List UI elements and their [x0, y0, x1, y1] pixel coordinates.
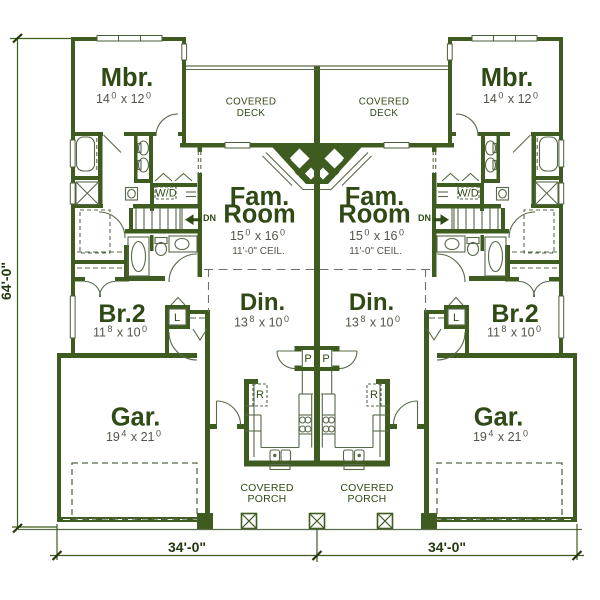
svg-text:P: P — [304, 353, 311, 365]
svg-text:PORCH: PORCH — [348, 493, 387, 505]
svg-text:150 x 160: 150 x 160 — [349, 228, 404, 244]
svg-text:L: L — [453, 312, 459, 324]
svg-text:Br.2: Br.2 — [491, 300, 538, 328]
svg-text:COVERED: COVERED — [226, 97, 277, 108]
svg-text:DECK: DECK — [237, 108, 266, 119]
svg-text:150 x 160: 150 x 160 — [230, 228, 285, 244]
svg-text:W/D: W/D — [457, 188, 478, 200]
svg-text:L: L — [174, 312, 180, 324]
svg-text:194 x 210: 194 x 210 — [106, 429, 161, 445]
svg-text:140 x 120: 140 x 120 — [96, 91, 151, 107]
svg-text:R: R — [370, 389, 378, 401]
svg-text:118 x 100: 118 x 100 — [93, 324, 147, 340]
svg-text:194 x 210: 194 x 210 — [473, 429, 528, 445]
svg-text:138 x 100: 138 x 100 — [234, 314, 289, 330]
svg-text:Gar.: Gar. — [474, 404, 524, 432]
svg-text:Din.: Din. — [349, 289, 394, 316]
svg-text:R: R — [256, 389, 264, 401]
svg-text:138 x 100: 138 x 100 — [345, 314, 400, 330]
svg-text:COVERED: COVERED — [359, 97, 410, 108]
svg-text:Mbr.: Mbr. — [101, 64, 153, 92]
svg-text:64'-0": 64'-0" — [0, 262, 14, 300]
svg-text:Mbr.: Mbr. — [481, 64, 533, 92]
svg-text:118 x 100: 118 x 100 — [487, 324, 541, 340]
svg-text:Room: Room — [223, 201, 295, 229]
svg-text:W/D: W/D — [155, 188, 176, 200]
svg-text:140 x 120: 140 x 120 — [483, 91, 538, 107]
svg-text:P: P — [322, 353, 329, 365]
svg-text:11'-0" CEIL.: 11'-0" CEIL. — [349, 246, 402, 257]
svg-text:Room: Room — [338, 201, 410, 229]
svg-text:34'-0": 34'-0" — [428, 539, 466, 555]
svg-text:Gar.: Gar. — [111, 404, 161, 432]
svg-text:11'-0" CEIL.: 11'-0" CEIL. — [232, 246, 285, 257]
svg-text:DN: DN — [418, 213, 431, 223]
svg-text:DECK: DECK — [370, 108, 399, 119]
svg-text:Br.2: Br.2 — [98, 300, 145, 328]
svg-text:Din.: Din. — [240, 289, 285, 316]
svg-text:DN: DN — [203, 213, 216, 223]
svg-text:34'-0": 34'-0" — [168, 539, 206, 555]
svg-text:PORCH: PORCH — [248, 493, 287, 505]
